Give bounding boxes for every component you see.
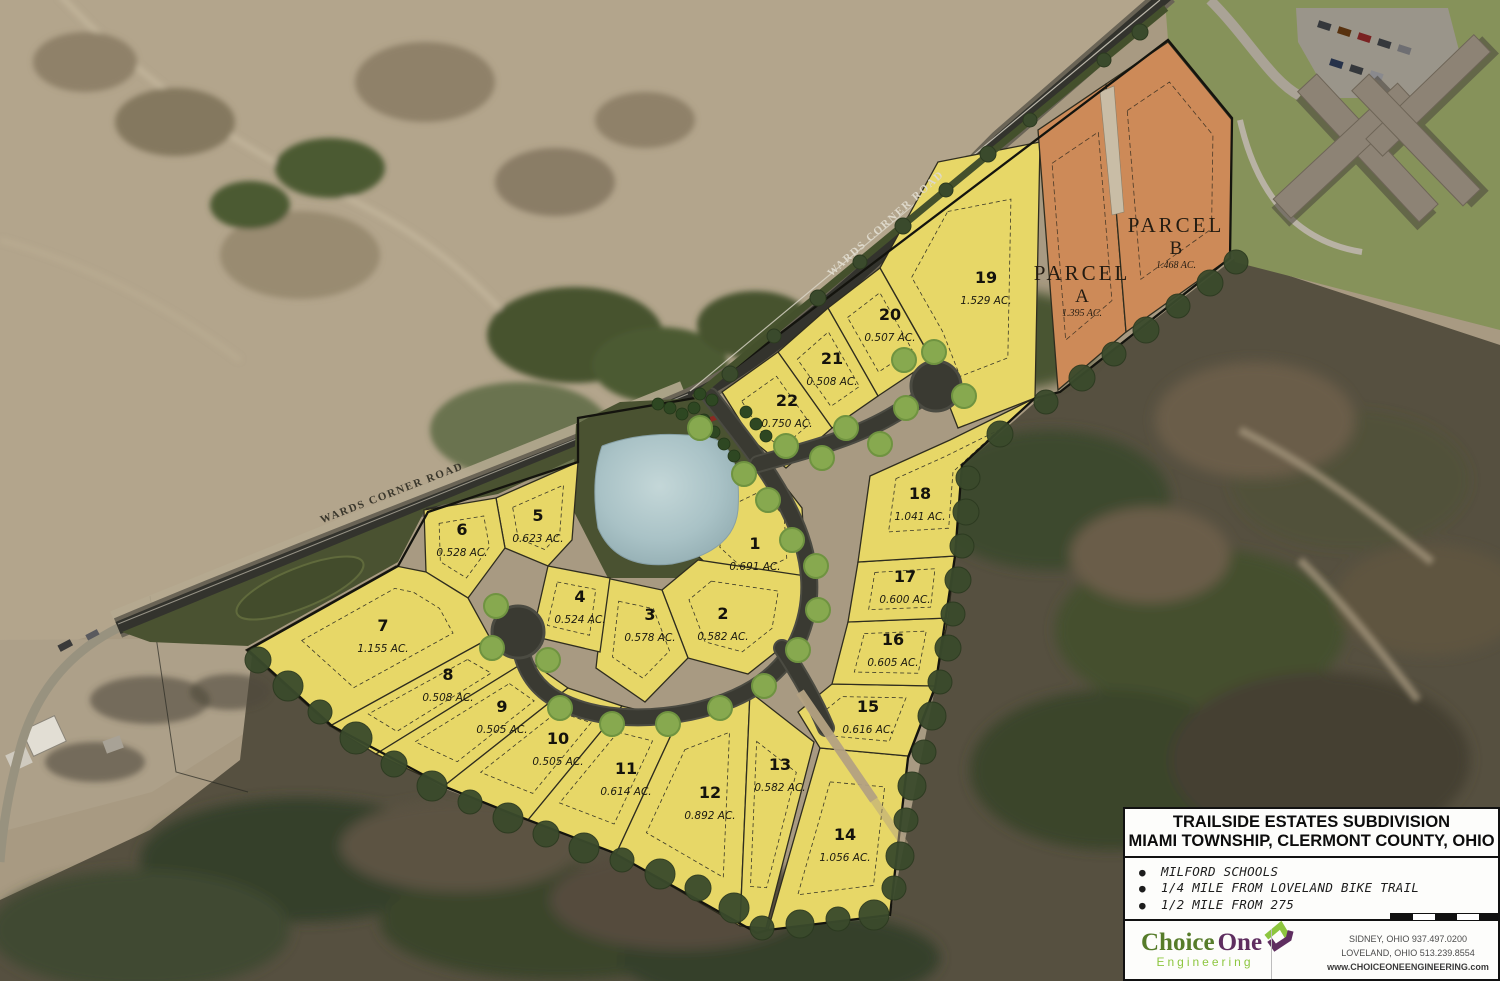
lot-acreage-22: 0.750 AC. xyxy=(761,418,812,430)
shrub xyxy=(728,450,740,462)
lot-number-19: 19 xyxy=(975,268,997,287)
street-tree xyxy=(600,712,624,736)
street-tree xyxy=(756,488,780,512)
lot-17 xyxy=(848,556,955,622)
tree xyxy=(1132,24,1148,40)
tree xyxy=(826,907,850,931)
lot-acreage-20: 0.507 AC. xyxy=(864,332,915,344)
parcel-acreage-B: 1.468 AC. xyxy=(1156,260,1196,271)
street-tree xyxy=(656,712,680,736)
lot-number-15: 15 xyxy=(857,697,879,716)
street-tree xyxy=(786,638,810,662)
shrub xyxy=(740,406,752,418)
street-tree xyxy=(952,384,976,408)
tree xyxy=(1034,390,1058,414)
tree xyxy=(987,421,1013,447)
lot-acreage-2: 0.582 AC. xyxy=(697,631,748,643)
tree xyxy=(935,635,961,661)
street-tree xyxy=(732,462,756,486)
pond xyxy=(595,434,739,564)
lot-acreage-6: 0.528 AC. xyxy=(436,547,487,559)
feature-item: ●1/4 MILE FROM LOVELAND BIKE TRAIL xyxy=(1139,880,1498,896)
lot-acreage-9: 0.505 AC. xyxy=(476,724,527,736)
lot-number-7: 7 xyxy=(377,616,388,635)
lot-number-1: 1 xyxy=(749,534,760,553)
feature-text: 1/4 MILE FROM LOVELAND BIKE TRAIL xyxy=(1161,880,1419,895)
tree xyxy=(956,466,980,490)
street-tree xyxy=(894,396,918,420)
tree xyxy=(381,751,407,777)
tree xyxy=(945,567,971,593)
lot-acreage-21: 0.508 AC. xyxy=(806,376,857,388)
tree xyxy=(894,808,918,832)
plan-title-line1: TRAILSIDE ESTATES SUBDIVISION xyxy=(1127,813,1496,832)
street-tree xyxy=(892,348,916,372)
logo-word-choice: Choice xyxy=(1141,929,1215,956)
shrub xyxy=(664,402,676,414)
lot-acreage-16: 0.605 AC. xyxy=(867,657,918,669)
street-tree xyxy=(810,446,834,470)
lot-acreage-3: 0.578 AC. xyxy=(624,632,675,644)
lot-number-12: 12 xyxy=(699,783,721,802)
tree xyxy=(1069,365,1095,391)
lot-number-10: 10 xyxy=(547,729,569,748)
lot-number-17: 17 xyxy=(894,567,916,586)
lot-number-3: 3 xyxy=(644,605,655,624)
street-tree xyxy=(868,432,892,456)
divider xyxy=(1271,929,1272,979)
plan-title: TRAILSIDE ESTATES SUBDIVISION MIAMI TOWN… xyxy=(1125,809,1498,858)
street-tree xyxy=(834,416,858,440)
tree xyxy=(308,700,332,724)
shrub xyxy=(694,388,706,400)
tree xyxy=(645,859,675,889)
aerial-site-plan: 10.691 AC.20.582 AC.30.578 AC.40.524 AC.… xyxy=(0,0,1500,981)
lot-acreage-8: 0.508 AC. xyxy=(422,692,473,704)
tree xyxy=(928,670,952,694)
tree xyxy=(953,499,979,525)
street-tree xyxy=(484,594,508,618)
parcel-title-A: PARCEL xyxy=(1034,261,1131,285)
lot-number-4: 4 xyxy=(574,587,585,606)
tree xyxy=(1102,342,1126,366)
tree xyxy=(1023,113,1037,127)
tree xyxy=(685,875,711,901)
tree xyxy=(950,534,974,558)
lot-acreage-11: 0.614 AC. xyxy=(600,786,651,798)
parcel-letter-B: B xyxy=(1170,238,1183,259)
tree xyxy=(767,329,781,343)
lot-number-6: 6 xyxy=(456,520,467,539)
street-tree xyxy=(480,636,504,660)
lot-acreage-1: 0.691 AC. xyxy=(729,561,780,573)
tree xyxy=(810,290,826,306)
lot-acreage-19: 1.529 AC. xyxy=(960,295,1011,307)
shrub xyxy=(676,408,688,420)
contact-website: www.CHOICEONEENGINEERING.com xyxy=(1320,961,1496,975)
shrub xyxy=(760,430,772,442)
lot-number-18: 18 xyxy=(909,484,931,503)
street-tree xyxy=(548,696,572,720)
tree xyxy=(458,790,482,814)
tree xyxy=(1097,53,1111,67)
plan-title-line2: MIAMI TOWNSHIP, CLERMONT COUNTY, OHIO xyxy=(1127,832,1496,851)
lot-acreage-10: 0.505 AC. xyxy=(532,756,583,768)
tree xyxy=(273,671,303,701)
contact-info: SIDNEY, OHIO 937.497.0200 LOVELAND, OHIO… xyxy=(1320,933,1496,975)
title-block: TRAILSIDE ESTATES SUBDIVISION MIAMI TOWN… xyxy=(1123,807,1500,981)
contact-line: LOVELAND, OHIO 513.239.8554 xyxy=(1320,947,1496,961)
feature-text: 1/2 MILE FROM 275 xyxy=(1161,897,1294,912)
feature-text: MILFORD SCHOOLS xyxy=(1161,864,1278,879)
lot-number-22: 22 xyxy=(776,391,798,410)
shrub xyxy=(706,394,718,406)
tree xyxy=(493,803,523,833)
tree xyxy=(1197,270,1223,296)
bullet-dot: ● xyxy=(1139,866,1161,880)
contact-line: SIDNEY, OHIO 937.497.0200 xyxy=(1320,933,1496,947)
scale-bar xyxy=(1390,913,1500,921)
lot-acreage-17: 0.600 AC. xyxy=(879,594,930,606)
shrub xyxy=(652,398,664,410)
street-tree xyxy=(688,416,712,440)
tree xyxy=(898,772,926,800)
lot-number-9: 9 xyxy=(496,697,507,716)
lot-number-21: 21 xyxy=(821,349,843,368)
feature-list: ●MILFORD SCHOOLS ●1/4 MILE FROM LOVELAND… xyxy=(1125,858,1498,921)
tree xyxy=(417,771,447,801)
lot-number-16: 16 xyxy=(882,630,904,649)
tree xyxy=(722,366,738,382)
lot-acreage-5: 0.623 AC. xyxy=(512,533,563,545)
tree xyxy=(941,602,965,626)
lot-acreage-4: 0.524 AC. xyxy=(554,614,605,626)
tree xyxy=(340,722,372,754)
tree xyxy=(882,876,906,900)
lot-acreage-13: 0.582 AC. xyxy=(754,782,805,794)
tree xyxy=(912,740,936,764)
tree xyxy=(533,821,559,847)
parcel-letter-A: A xyxy=(1075,286,1089,307)
street-tree xyxy=(752,674,776,698)
logo-word-one: One xyxy=(1218,929,1262,956)
street-tree xyxy=(804,554,828,578)
street-tree xyxy=(922,340,946,364)
tree xyxy=(980,146,996,162)
tree xyxy=(1133,317,1159,343)
parcel-title-B: PARCEL xyxy=(1128,213,1225,237)
choice-one-logo: ChoiceOne Engineering xyxy=(1141,929,1269,969)
street-tree xyxy=(780,528,804,552)
feature-item: ●1/2 MILE FROM 275 xyxy=(1139,897,1498,913)
tree xyxy=(610,848,634,872)
lot-number-14: 14 xyxy=(834,825,856,844)
lot-number-13: 13 xyxy=(769,755,791,774)
lot-number-2: 2 xyxy=(717,604,728,623)
lot-number-20: 20 xyxy=(879,305,901,324)
lot-acreage-12: 0.892 AC. xyxy=(684,810,735,822)
tree xyxy=(719,893,749,923)
tree xyxy=(886,842,914,870)
checkmark-square-icon xyxy=(1261,919,1295,958)
lot-number-5: 5 xyxy=(532,506,543,525)
lot-acreage-7: 1.155 AC. xyxy=(357,643,408,655)
lot-acreage-14: 1.056 AC. xyxy=(819,852,870,864)
bullet-dot: ● xyxy=(1139,899,1161,913)
tree xyxy=(939,183,953,197)
street-tree xyxy=(536,648,560,672)
lot-acreage-15: 0.616 AC. xyxy=(842,724,893,736)
lot-number-11: 11 xyxy=(615,759,637,778)
logo-subtitle: Engineering xyxy=(1141,955,1269,969)
tree xyxy=(245,647,271,673)
tree xyxy=(859,900,889,930)
tree xyxy=(569,833,599,863)
shrub xyxy=(688,402,700,414)
lot-number-8: 8 xyxy=(442,665,453,684)
lot-acreage-18: 1.041 AC. xyxy=(894,511,945,523)
title-block-footer: ChoiceOne Engineering SIDNEY, OHIO 937.4… xyxy=(1125,921,1498,981)
tree xyxy=(1224,250,1248,274)
bullet-dot: ● xyxy=(1139,882,1161,896)
feature-item: ●MILFORD SCHOOLS xyxy=(1139,864,1498,880)
shrub xyxy=(750,418,762,430)
tree xyxy=(1166,294,1190,318)
street-tree xyxy=(774,434,798,458)
tree xyxy=(786,910,814,938)
tree xyxy=(750,916,774,940)
street-tree xyxy=(806,598,830,622)
parcel-acreage-A: 1.395 AC. xyxy=(1062,308,1102,319)
street-tree xyxy=(708,696,732,720)
tree xyxy=(918,702,946,730)
shrub xyxy=(718,438,730,450)
